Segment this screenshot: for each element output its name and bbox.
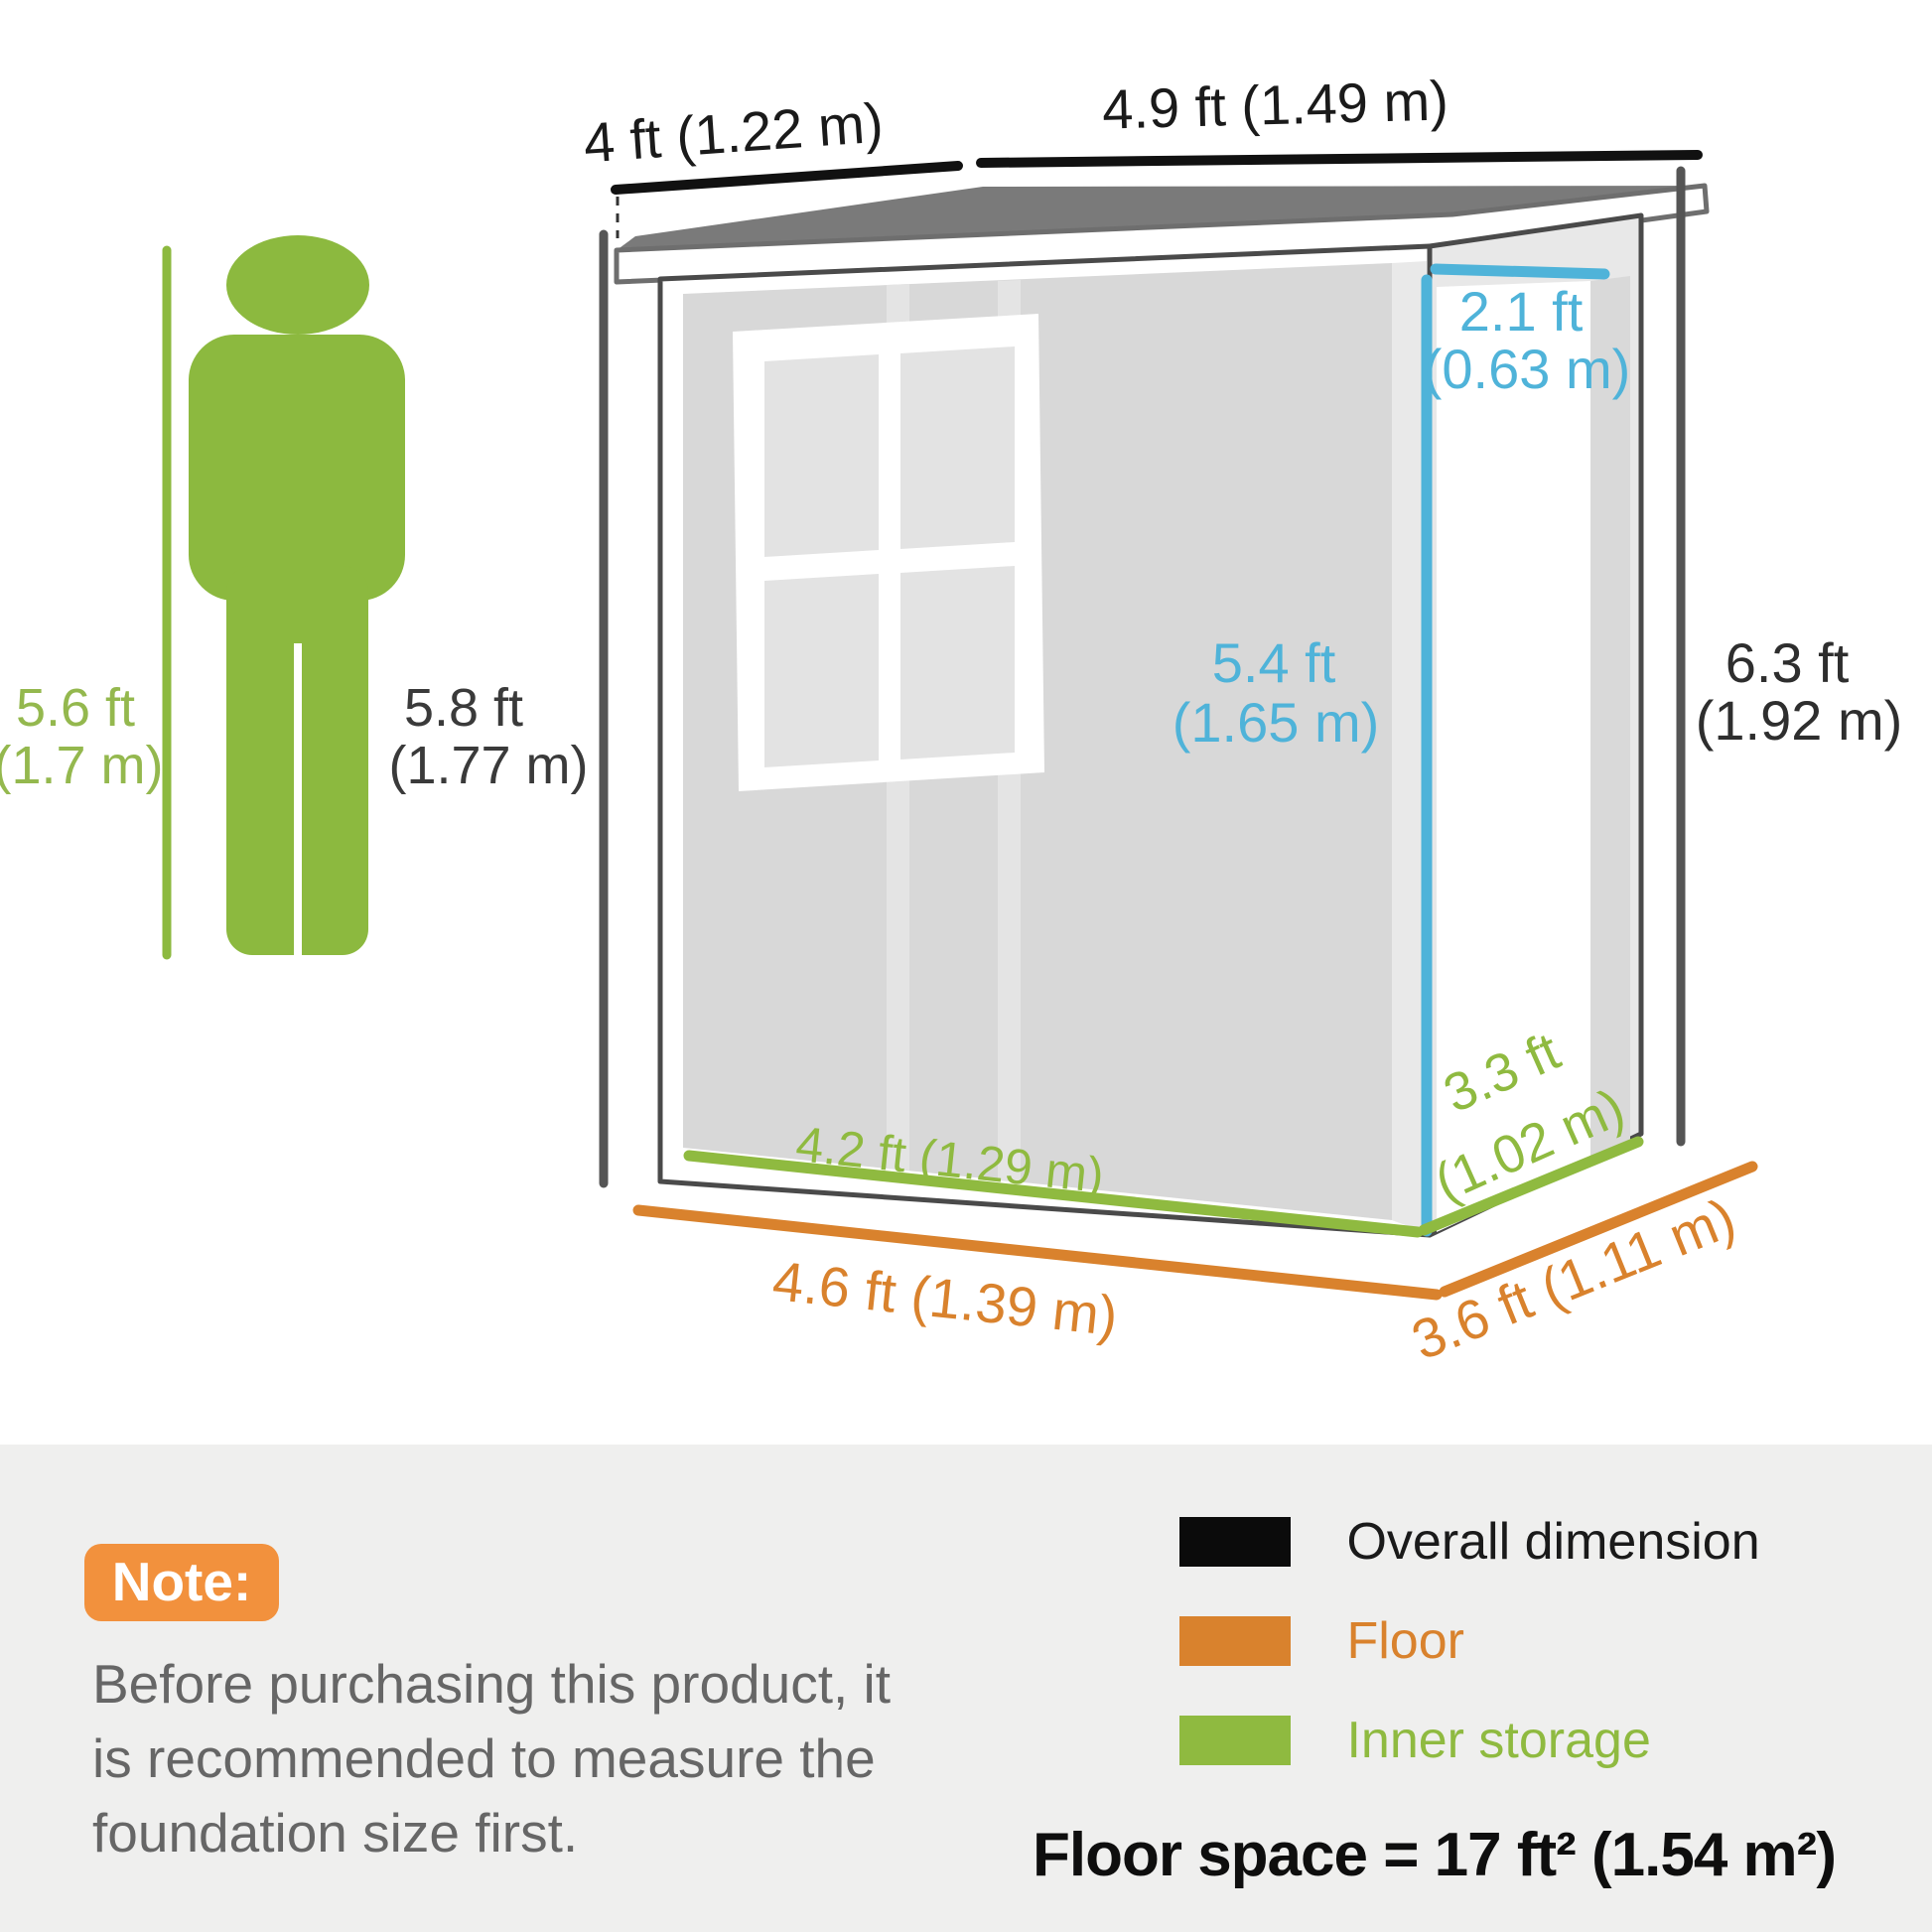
low-wall-height-label-m: (1.77 m) xyxy=(388,736,588,795)
overall-height-label-ft: 6.3 ft xyxy=(1725,631,1850,694)
roof-width-dim-line xyxy=(981,155,1698,163)
low-wall-height-label-ft: 5.8 ft xyxy=(404,678,523,738)
roof-depth-label: 4 ft (1.22 m) xyxy=(582,91,886,175)
diagram-canvas: 5.6 ft (1.7 m) 5.8 ft (1.77 m) 4 ft (1.2… xyxy=(0,0,1932,1445)
legend-row-floor: Floor xyxy=(1179,1616,1760,1666)
overall-dimension-swatch xyxy=(1179,1517,1291,1567)
window-pane xyxy=(764,354,879,557)
legend-label-floor: Floor xyxy=(1346,1616,1463,1666)
floor-width-label: 4.6 ft (1.39 m) xyxy=(769,1249,1120,1347)
info-panel: Note: Before purchasing this product, it… xyxy=(0,1445,1932,1932)
floor-space-total: Floor space = 17 ft² (1.54 m²) xyxy=(1033,1820,1836,1890)
person-torso xyxy=(189,335,405,601)
door-width-measure-line xyxy=(1436,269,1604,274)
inner-storage-swatch xyxy=(1179,1716,1291,1765)
legend-row-inner: Inner storage xyxy=(1179,1716,1760,1765)
window-pane xyxy=(900,566,1015,759)
floor-swatch xyxy=(1179,1616,1291,1666)
legend-label-inner: Inner storage xyxy=(1346,1716,1650,1765)
window-pane xyxy=(900,346,1015,549)
person-silhouette xyxy=(189,235,405,959)
door-width-label-ft: 2.1 ft xyxy=(1459,280,1584,343)
overall-height-label-m: (1.92 m) xyxy=(1696,689,1903,752)
door-width-label-m: (0.63 m) xyxy=(1424,338,1631,400)
legend: Overall dimension Floor Inner storage xyxy=(1179,1517,1760,1815)
door-height-label-ft: 5.4 ft xyxy=(1212,631,1336,694)
person-leg-gap xyxy=(294,643,302,959)
door-height-label-m: (1.65 m) xyxy=(1173,691,1380,754)
person-height-label-m: (1.7 m) xyxy=(0,736,164,795)
window-pane xyxy=(764,574,879,767)
legend-label-overall: Overall dimension xyxy=(1346,1517,1759,1567)
legend-row-overall: Overall dimension xyxy=(1179,1517,1760,1567)
roof-width-label: 4.9 ft (1.49 m) xyxy=(1101,69,1449,140)
window xyxy=(733,314,1044,791)
note-text: Before purchasing this product, it is re… xyxy=(92,1647,891,1870)
roof-depth-dim-line xyxy=(616,166,958,190)
person-head xyxy=(226,235,369,335)
note-line: Before purchasing this product, it xyxy=(92,1647,891,1722)
person-height-label-ft: 5.6 ft xyxy=(16,678,135,738)
door-jamb xyxy=(1590,276,1630,1162)
note-badge: Note: xyxy=(84,1544,279,1621)
note-line: foundation size first. xyxy=(92,1796,891,1870)
shed-dimension-diagram: 5.6 ft (1.7 m) 5.8 ft (1.77 m) 4 ft (1.2… xyxy=(0,0,1932,1932)
note-line: is recommended to measure the xyxy=(92,1722,891,1796)
